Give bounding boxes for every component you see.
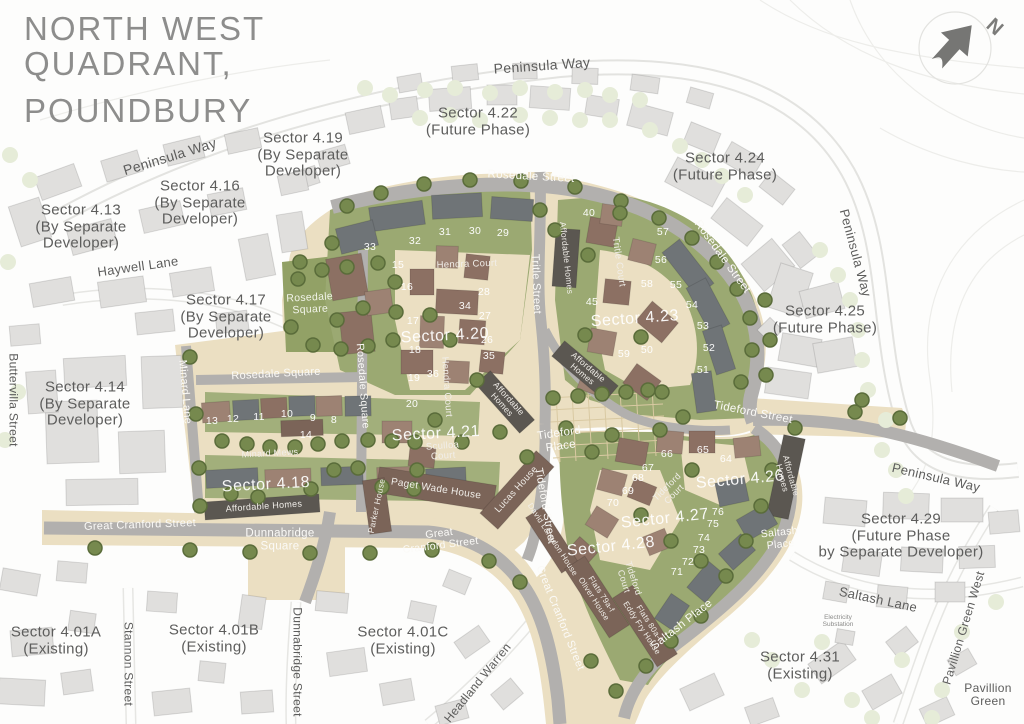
tideford-court-1: TidefordCourt — [652, 472, 691, 511]
plot-69: 69 — [622, 486, 634, 498]
north-label: N — [981, 14, 1007, 41]
plot-30: 30 — [469, 226, 481, 238]
affordable-homes-center-right: AffordableHomes — [563, 350, 607, 391]
rosedale-square-vertical: Rosedale Square — [353, 343, 370, 429]
pavillion-green-west: Pavillion Green West — [940, 570, 987, 687]
tideford-place: TidefordPlace — [536, 424, 583, 455]
tideford-street-east: Tideford Street — [712, 399, 793, 427]
sector-4-16: Sector 4.16(By SeparateDeveloper) — [154, 178, 245, 228]
plot-33: 33 — [364, 242, 376, 254]
plot-68: 68 — [632, 473, 644, 485]
plot-15: 15 — [392, 260, 404, 272]
plot-75: 75 — [707, 519, 719, 531]
sector-4-01b: Sector 4.01B(Existing) — [169, 623, 259, 656]
sector-4-19: Sector 4.19(By SeparateDeveloper) — [257, 130, 348, 180]
haywell-lane: Haywell Lane — [97, 254, 180, 280]
plot-12: 12 — [227, 414, 239, 426]
north-indicator: N — [915, 8, 1020, 98]
plot-9: 9 — [310, 413, 316, 425]
headland-warren: Headland Warren — [442, 641, 514, 724]
plot-57: 57 — [657, 227, 669, 239]
sector-4-23: Sector 4.23 — [590, 307, 679, 331]
dunnabridge-square: DunnabridgeSquare — [245, 527, 314, 552]
plot-51: 51 — [697, 365, 709, 377]
hendra-court: Hendra Court — [437, 259, 498, 272]
great-cranford-street-west: Great Cranford Street — [84, 517, 196, 533]
site-plan-map: Sector 4.13(By SeparateDeveloper)Sector … — [0, 0, 1024, 724]
plot-14: 14 — [300, 430, 312, 442]
dunnabridge-street: Dunnabridge Street — [290, 607, 303, 716]
sector-4-28: Sector 4.28 — [566, 534, 656, 561]
plot-54: 54 — [686, 300, 698, 312]
plot-26: 26 — [481, 335, 493, 347]
rosedale-square-park: RosedaleSquare — [286, 291, 334, 317]
plot-31: 31 — [439, 227, 451, 239]
affordable-homes-426: AffordableHomes — [772, 454, 801, 499]
rosedale-street-top: Rosedale Street — [487, 168, 575, 185]
peninsula-way-se: Peninsula Way — [890, 461, 981, 495]
plot-19: 19 — [408, 373, 420, 385]
minard-mews: Minard Mews — [241, 448, 298, 461]
rosedale-street-east: Rosedale Street — [691, 218, 752, 296]
rosedale-square-street: Rosedale Square — [231, 366, 321, 383]
plot-27: 27 — [479, 311, 491, 323]
sector-4-25: Sector 4.25(Future Phase) — [773, 304, 877, 337]
tritle-court: Tritle Court — [609, 236, 626, 287]
plot-72: 72 — [682, 557, 694, 569]
oliver-house: Flats 79a-fOliver House — [576, 571, 618, 622]
plot-76: 76 — [712, 507, 724, 519]
plot-45: 45 — [586, 297, 598, 309]
plot-13: 13 — [206, 416, 218, 428]
plot-59: 59 — [618, 349, 630, 361]
sector-4-22: Sector 4.22(Future Phase) — [426, 106, 530, 139]
tritle-street: Tritle Street — [529, 254, 543, 315]
sector-4-13: Sector 4.13(By SeparateDeveloper) — [35, 202, 126, 252]
plot-52: 52 — [703, 343, 715, 355]
plot-65: 65 — [697, 445, 709, 457]
plot-40: 40 — [583, 208, 595, 220]
plot-11: 11 — [253, 412, 265, 424]
map-title-line2: QUADRANT, — [24, 47, 265, 82]
plot-35: 35 — [483, 351, 495, 363]
plot-58: 58 — [641, 279, 653, 291]
plot-64: 64 — [720, 454, 732, 466]
stannon-street: Stannon Street — [121, 622, 134, 706]
electricity-substation: ElectricitySubstation — [823, 614, 854, 628]
peninsula-way-nw: Peninsula Way — [121, 135, 218, 178]
parker-house: Parker House — [367, 478, 388, 534]
plot-70: 70 — [607, 498, 619, 510]
plot-16: 16 — [401, 282, 413, 294]
plot-10: 10 — [281, 409, 293, 421]
plot-18: 18 — [409, 345, 421, 357]
peninsula-way-top: Peninsula Way — [493, 55, 591, 77]
plot-71: 71 — [671, 567, 683, 579]
sector-4-14: Sector 4.14(By SeparateDeveloper) — [39, 379, 130, 429]
buttervilla-street: Buttervilla Street — [6, 353, 19, 446]
affordable-homes-423: Affordable Homes — [558, 221, 575, 294]
plot-66: 66 — [661, 449, 673, 461]
tideford-court-2: TidefordCourt — [613, 560, 643, 599]
plot-53: 53 — [697, 321, 709, 333]
sector-4-01c: Sector 4.01C(Existing) — [357, 625, 448, 658]
affordable-homes-418: Affordable Homes — [225, 499, 302, 514]
sector-4-26: Sector 4.26 — [695, 467, 785, 492]
sector-4-18: Sector 4.18 — [221, 474, 310, 496]
map-title: NORTH WEST QUADRANT, POUNDBURY — [24, 12, 265, 129]
eddy-fry-house: Flats 80a-fEddy Fry House — [621, 595, 669, 656]
plot-28: 28 — [478, 287, 490, 299]
map-title-line1: NORTH WEST — [24, 12, 265, 47]
plot-8: 8 — [331, 415, 337, 427]
saltash-lane: Saltash Lane — [838, 585, 919, 616]
plot-55: 55 — [670, 280, 682, 292]
affordable-homes-center-left: AffordableHomes — [484, 380, 526, 423]
saltash-place-label: SaltashPlace — [760, 526, 799, 553]
plot-20: 20 — [406, 399, 418, 411]
sector-4-01a: Sector 4.01A(Existing) — [11, 625, 101, 658]
sector-4-29: Sector 4.29(Future Phaseby Separate Deve… — [818, 511, 983, 561]
plot-29: 29 — [497, 228, 509, 240]
great-cranford-street-center: GreatCranford Street — [401, 524, 480, 556]
plot-56: 56 — [655, 255, 667, 267]
map-title-line3: POUNDBURY — [24, 94, 265, 129]
plot-17: 17 — [407, 316, 419, 328]
sector-4-24: Sector 4.24(Future Phase) — [673, 151, 777, 184]
plot-34: 34 — [459, 301, 471, 313]
sculloa-court: SculloaCourt — [426, 440, 461, 463]
plot-36: 36 — [427, 369, 439, 381]
plot-73: 73 — [693, 545, 705, 557]
pavillion-green: PavillionGreen — [964, 682, 1011, 708]
paget-wade-house: Paget Wade House — [390, 476, 482, 501]
plot-50: 50 — [641, 345, 653, 357]
plot-32: 32 — [409, 236, 421, 248]
hendra-court-vertical: Hendra Court — [439, 356, 454, 417]
peninsula-way-east: Peninsula Way — [836, 208, 873, 299]
sector-4-31: Sector 4.31(Existing) — [760, 650, 840, 683]
minard-lane: Minard Lane — [176, 359, 194, 424]
plot-74: 74 — [698, 533, 710, 545]
sector-4-17: Sector 4.17(By SeparateDeveloper) — [180, 292, 271, 342]
